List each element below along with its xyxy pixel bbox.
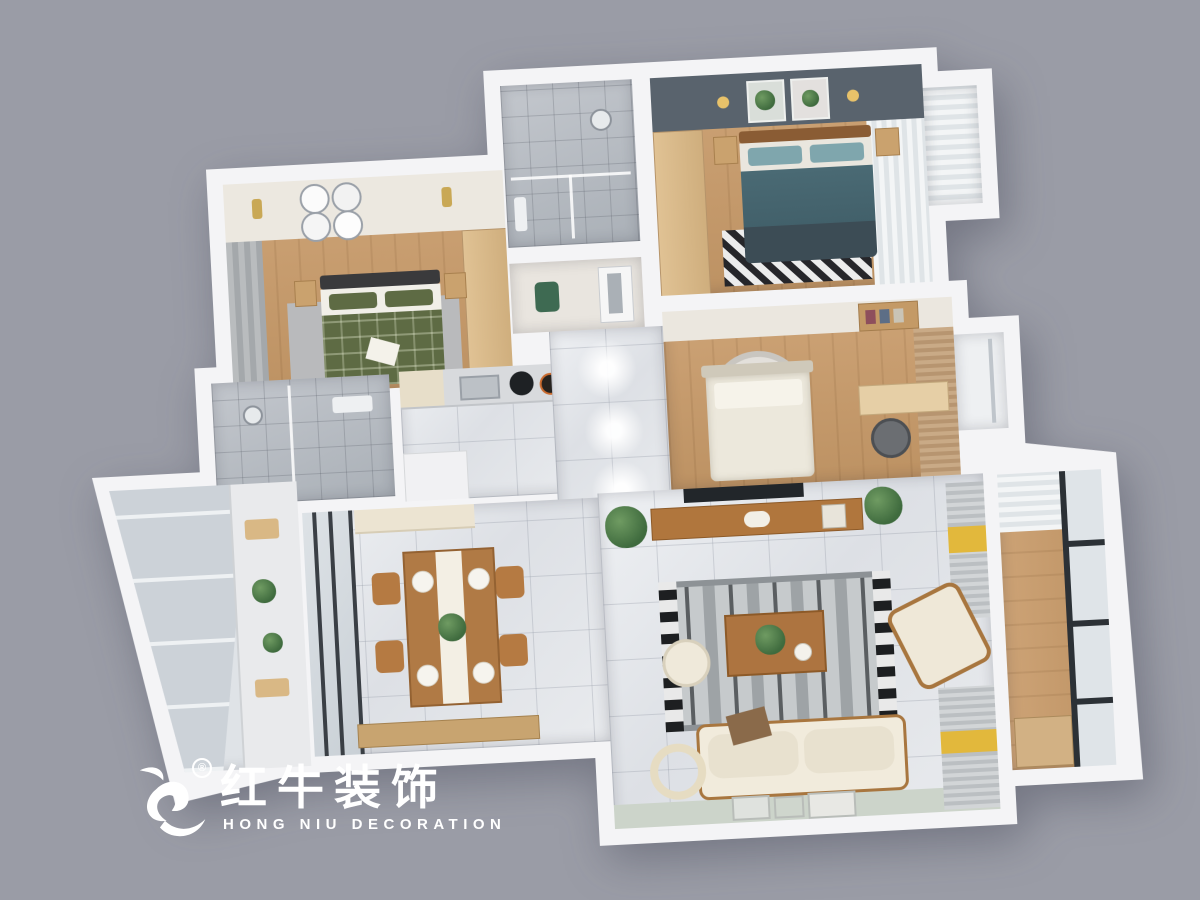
plant-monstera — [604, 505, 648, 549]
leaning-frame — [774, 795, 805, 819]
botanical-art — [746, 79, 786, 123]
desk — [858, 381, 949, 416]
rug-diamond-border — [872, 570, 898, 721]
yellow-throw — [940, 729, 997, 754]
dining-chair — [371, 572, 401, 605]
ceiling-light-spot — [575, 337, 638, 400]
green-chair — [534, 281, 560, 312]
leaning-frame — [732, 795, 771, 821]
floorplan-render: ® 红牛装饰 HONG NIU DECORATION — [0, 0, 1200, 900]
nightstand — [294, 280, 317, 307]
plant-art-icon — [755, 90, 776, 111]
plant-on-table — [755, 624, 787, 656]
window-bench — [938, 685, 1000, 810]
sliding-glass-door — [302, 510, 365, 756]
bathroom-fixture — [514, 197, 528, 232]
room-balcony — [997, 469, 1116, 770]
pillow — [810, 142, 865, 163]
place-setting — [472, 661, 495, 684]
registered-mark: ® — [192, 758, 212, 778]
room-shower-bath-top — [500, 79, 640, 248]
prep-counter — [228, 481, 311, 769]
cutting-board — [244, 518, 279, 540]
wardrobe — [653, 130, 712, 296]
bookshelf — [858, 301, 919, 332]
window-frame — [988, 339, 996, 423]
room-master-bedroom — [650, 64, 933, 296]
room-hall-nook — [509, 257, 644, 334]
room-study-bedroom — [662, 297, 961, 490]
door-frame — [312, 512, 329, 756]
glazing-bar — [1077, 697, 1117, 705]
place-setting — [411, 570, 434, 593]
kitchen-cabinet — [403, 450, 470, 501]
gold-sconce-icon — [252, 199, 263, 219]
door-frame — [328, 511, 345, 755]
room-dining — [302, 498, 610, 757]
shower-head-icon — [589, 108, 612, 131]
office-chair — [870, 417, 912, 459]
brand-name-cn: 红牛装饰 — [220, 764, 448, 811]
glass-partition — [569, 174, 575, 238]
cutting-board — [255, 678, 290, 698]
glass-partition — [287, 385, 296, 495]
yellow-throw — [948, 525, 987, 553]
dining-table — [402, 547, 502, 708]
pillow — [714, 379, 803, 410]
range-hood — [399, 369, 445, 407]
dining-chair — [375, 640, 405, 673]
books — [865, 310, 876, 325]
pillow — [329, 292, 378, 310]
nightstand — [444, 272, 467, 299]
seat-cushion — [803, 725, 895, 774]
brand-name-en: HONG NIU DECORATION — [223, 816, 506, 833]
master-bay-window — [923, 85, 983, 206]
watermark-logo: ® 红牛装饰 HONG NIU DECORATION — [128, 758, 508, 858]
nightstand — [713, 136, 738, 165]
dining-chair — [495, 566, 525, 599]
bed-throw — [744, 221, 878, 264]
pillow — [385, 289, 434, 307]
plate-art — [332, 209, 364, 241]
place-setting — [467, 567, 490, 590]
cream-sofa — [696, 714, 910, 801]
vanity — [332, 395, 373, 413]
room-bedroom-green — [223, 170, 514, 396]
leaning-frame — [807, 790, 856, 818]
window-curtain — [226, 241, 270, 397]
sink — [459, 375, 500, 401]
glazing-bar — [1073, 619, 1115, 627]
bowl — [794, 643, 813, 662]
place-setting — [416, 664, 439, 687]
white-bed — [701, 360, 819, 482]
wok-icon — [509, 371, 534, 396]
ceiling-light-spot — [583, 399, 646, 462]
shower-head-icon — [242, 405, 263, 426]
wall-sconce-icon — [717, 96, 730, 109]
glazing-bar — [1069, 539, 1111, 547]
room-hallway — [549, 326, 673, 518]
dining-chair — [499, 633, 529, 666]
console-decor — [744, 511, 771, 528]
tv-console — [650, 498, 863, 541]
console-books — [821, 504, 846, 529]
throw-pillow — [365, 337, 400, 366]
plant — [864, 486, 904, 526]
interior-door — [598, 265, 635, 323]
full-height-windows — [79, 484, 249, 778]
top-cabinet — [354, 504, 475, 534]
door-panel — [607, 273, 623, 314]
botanical-art — [790, 77, 830, 121]
balcony-cabinet — [1014, 715, 1075, 768]
coffee-table — [724, 610, 827, 677]
nightstand — [875, 127, 900, 156]
plate-art — [299, 183, 331, 215]
study-bay-window — [954, 332, 1009, 430]
teal-duvet — [741, 165, 878, 264]
room-utility-balcony — [79, 481, 312, 777]
room-living — [597, 473, 1000, 829]
wardrobe — [461, 228, 513, 386]
plant-art-icon — [802, 89, 820, 107]
white-curtain — [997, 471, 1062, 532]
plant — [251, 579, 276, 604]
gold-sconce-icon — [441, 187, 452, 207]
pillow — [748, 145, 803, 166]
plant — [262, 632, 283, 653]
books — [893, 308, 904, 323]
wall-sconce-icon — [847, 89, 860, 102]
plate-art — [300, 211, 332, 243]
plate-art — [331, 182, 363, 214]
sideboard — [357, 715, 540, 748]
books — [879, 309, 890, 324]
bed-body — [706, 372, 815, 481]
